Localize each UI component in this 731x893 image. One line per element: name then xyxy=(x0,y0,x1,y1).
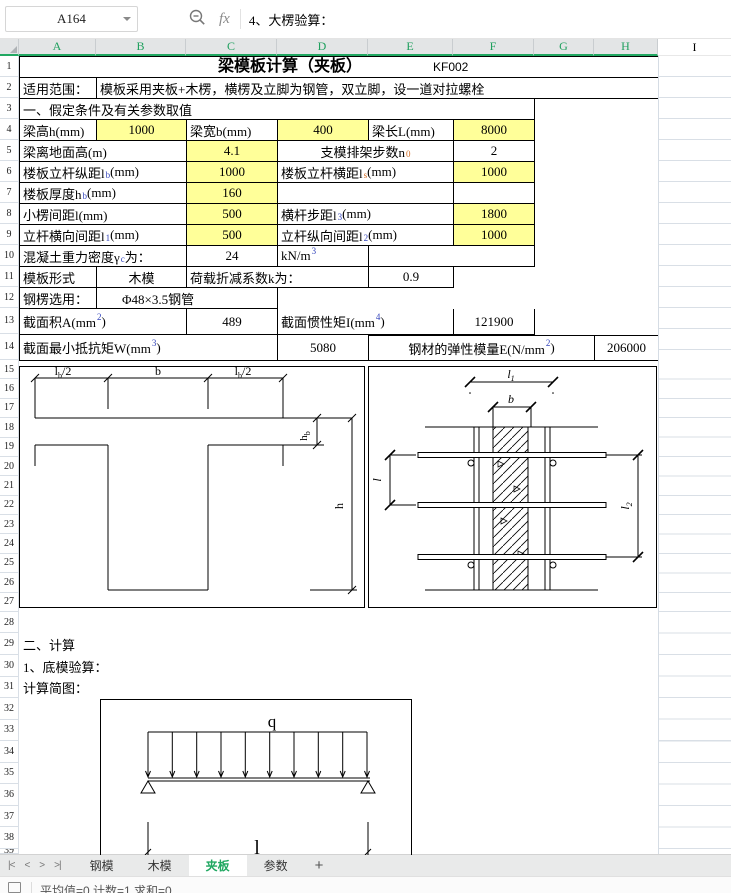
cell-a8-label[interactable]: 小楞间距l(mm) xyxy=(20,204,187,225)
row-header[interactable]: 3 xyxy=(0,98,19,119)
row-header[interactable]: 34 xyxy=(0,741,19,763)
cell-c5-value[interactable]: 4.1 xyxy=(187,141,278,162)
column-header-f[interactable]: F xyxy=(453,39,534,56)
dim-l2-label: l2 xyxy=(618,502,634,509)
cell-f13-value[interactable]: 121900 xyxy=(454,309,535,335)
column-header-b[interactable]: B xyxy=(96,39,186,56)
diagram-band: lb/2 b lb/2 xyxy=(19,361,659,613)
row-header[interactable]: 6 xyxy=(0,161,19,182)
row-header[interactable]: 30 xyxy=(0,655,19,677)
cell-g3-empty[interactable] xyxy=(535,99,659,120)
cell-c9-value[interactable]: 500 xyxy=(187,225,278,246)
cell-d9-label[interactable]: 立杆纵向间距l2(mm) xyxy=(278,225,454,246)
subscript: b xyxy=(83,191,88,201)
cell-a9-label[interactable]: 立杆横向间距l1(mm) xyxy=(20,225,187,246)
row-header[interactable]: 4 xyxy=(0,119,19,140)
select-all-corner[interactable] xyxy=(0,39,19,56)
row-header[interactable]: 31 xyxy=(0,677,19,699)
cell-c8-value[interactable]: 500 xyxy=(187,204,278,225)
sheet-title: 梁模板计算（夹板） xyxy=(20,57,560,77)
cell-a29[interactable]: 二、计算 xyxy=(19,634,659,655)
row-header[interactable]: 11 xyxy=(0,266,19,287)
cell-a30[interactable]: 1、底模验算： xyxy=(19,656,659,677)
cell-b2[interactable]: 模板采用夹板+木楞，横楞及立脚为钢管，双立脚，设一道对拉螺栓 xyxy=(97,78,659,99)
spreadsheet-grid: 1234567891011121314151617181920212223242… xyxy=(0,56,731,854)
cell-a13-label[interactable]: 截面积A(mm2) xyxy=(20,309,187,335)
row-header[interactable]: 2 xyxy=(0,77,19,98)
row-header[interactable]: 5 xyxy=(0,140,19,161)
cell-c7-value[interactable]: 160 xyxy=(187,183,278,204)
cell-a31[interactable]: 计算简图： xyxy=(19,677,659,698)
cell-c13-value[interactable]: 489 xyxy=(187,309,278,335)
dim-lb2-right-label: lb/2 xyxy=(235,366,252,380)
cell-mode-icon xyxy=(8,882,21,893)
beam-section-diagram: lb/2 b lb/2 xyxy=(19,366,365,608)
row-header[interactable]: 27 xyxy=(0,593,19,612)
subscript: 3 xyxy=(338,212,343,222)
cell-a6-label[interactable]: 楼板立杆纵距lb(mm) xyxy=(20,162,187,183)
span-l-label: l xyxy=(254,837,260,855)
row-header[interactable]: 26 xyxy=(0,573,19,592)
cell-a10-label[interactable]: 混凝土重力密度γc为： xyxy=(20,246,187,267)
superscript: 4 xyxy=(376,312,381,322)
name-box-value: A164 xyxy=(57,11,86,27)
formwork-plan-diagram: l1 b xyxy=(368,366,657,608)
cell-d8-label[interactable]: 横杆步距l3(mm) xyxy=(278,204,454,225)
cell-a7-label[interactable]: 楼板厚度hb(mm) xyxy=(20,183,187,204)
cell-h14-value[interactable]: 206000 xyxy=(595,335,659,361)
sheet-tab-mumo[interactable]: 木模 xyxy=(131,855,189,876)
cell-d10-unit[interactable]: kN/m3 xyxy=(278,246,369,267)
sheet-tab-jiaban-active[interactable]: 夹板 xyxy=(189,855,247,876)
dim-hb-label: hb xyxy=(298,431,312,441)
cell-f8-value[interactable]: 1800 xyxy=(454,204,535,225)
column-header-h[interactable]: H xyxy=(594,39,658,56)
column-i-cells[interactable] xyxy=(658,56,731,854)
dim-b-label: b xyxy=(508,392,514,406)
row-header[interactable]: 32 xyxy=(0,698,19,720)
row-header[interactable]: 21 xyxy=(0,476,19,495)
cell-a2[interactable]: 适用范围： xyxy=(20,78,97,99)
subscript: b xyxy=(106,170,111,180)
cell-a4-label[interactable]: 梁高h(mm) xyxy=(20,120,97,141)
simply-supported-beam-diagram: q xyxy=(100,699,412,855)
status-separator xyxy=(31,882,32,893)
row-header[interactable]: 19 xyxy=(0,438,19,457)
sheet-tab-canshu[interactable]: 参数 xyxy=(247,855,305,876)
cell-d5-label[interactable]: 支模排架步数n0 xyxy=(278,141,454,162)
cell-title[interactable]: 梁模板计算（夹板） KF002 xyxy=(20,57,659,78)
sheet-code: KF002 xyxy=(433,60,468,74)
cell-e14-label[interactable]: 钢材的弹性模量E(N/mm2) xyxy=(369,335,595,361)
first-sheet-icon[interactable]: |< xyxy=(8,860,14,871)
cell-c11-label[interactable]: 荷载折减系数k为： xyxy=(187,267,369,288)
subscript: 0 xyxy=(406,149,411,159)
formula-toolbar: A164 fx 4、大楞验算： xyxy=(0,0,731,39)
row-header[interactable]: 12 xyxy=(0,287,19,308)
superscript: 3 xyxy=(312,246,317,256)
next-sheet-icon[interactable]: > xyxy=(39,860,44,871)
cell-a28-empty[interactable] xyxy=(19,613,659,634)
dim-l-label: l xyxy=(370,478,384,482)
cell-d4-value[interactable]: 400 xyxy=(278,120,369,141)
row-header[interactable]: 13 xyxy=(0,308,19,334)
row-header[interactable]: 9 xyxy=(0,224,19,245)
cell-d13-label[interactable]: 截面惯性矩I(mm4) xyxy=(278,309,454,335)
cell-e4-label[interactable]: 梁长L(mm) xyxy=(369,120,454,141)
status-bar: 平均值=0 计数=1 求和=0 xyxy=(0,876,731,893)
subscript: c xyxy=(121,254,125,264)
cell-e10-empty[interactable] xyxy=(369,246,535,267)
subscript: 1 xyxy=(106,233,111,243)
row-header[interactable]: 20 xyxy=(0,457,19,476)
load-q-label: q xyxy=(268,712,277,731)
row-header[interactable]: 23 xyxy=(0,515,19,534)
column-header-e[interactable]: E xyxy=(368,39,453,56)
row-header[interactable]: 39 xyxy=(0,849,19,854)
dim-b-label: b xyxy=(155,366,161,378)
cell-c4-label[interactable]: 梁宽b(mm) xyxy=(187,120,278,141)
cell-a3[interactable]: 一、假定条件及有关参数取值 xyxy=(20,99,535,120)
column-header-i[interactable]: I xyxy=(658,39,731,56)
row-header[interactable]: 16 xyxy=(0,379,19,398)
row-header[interactable]: 22 xyxy=(0,496,19,515)
cell-d6-label[interactable]: 楼板立杆横距ls(mm) xyxy=(278,162,454,183)
row-header[interactable]: 28 xyxy=(0,612,19,634)
subscript: 2 xyxy=(364,233,369,243)
superscript: 3 xyxy=(152,338,157,348)
sheet-tab-bar: |< < > >| 钢模 木模 夹板 参数 + xyxy=(0,854,731,876)
row-header[interactable]: 25 xyxy=(0,554,19,573)
dim-l1-label: l1 xyxy=(507,367,514,383)
load-diagram-band: q xyxy=(19,698,659,855)
cell-a11-label[interactable]: 模板形式 xyxy=(20,267,97,288)
row-header[interactable]: 8 xyxy=(0,203,19,224)
row-header[interactable]: 36 xyxy=(0,784,19,806)
row-header[interactable]: 17 xyxy=(0,399,19,418)
cell-a12-label[interactable]: 钢楞选用： xyxy=(20,288,97,309)
subscript: s xyxy=(364,170,368,180)
name-box[interactable]: A164 xyxy=(5,6,138,32)
zoom-out-icon[interactable] xyxy=(188,8,207,30)
cell-f4-value[interactable]: 8000 xyxy=(454,120,535,141)
cell-d7-empty[interactable] xyxy=(278,183,454,204)
status-summary: 平均值=0 计数=1 求和=0 xyxy=(40,882,172,893)
dim-lb2-left-label: lb/2 xyxy=(55,366,72,380)
row-header[interactable]: 29 xyxy=(0,633,19,655)
row-header[interactable]: 15 xyxy=(0,360,19,379)
row-header[interactable]: 14 xyxy=(0,334,19,360)
cell-b4-value[interactable]: 1000 xyxy=(97,120,187,141)
row-header[interactable]: 1 xyxy=(0,56,19,77)
cell-a5-label[interactable]: 梁离地面高(m) xyxy=(20,141,187,162)
cell-b11-value[interactable]: 木模 xyxy=(97,267,187,288)
cell-f5-value[interactable]: 2 xyxy=(454,141,535,162)
add-sheet-button[interactable]: + xyxy=(305,855,334,876)
name-box-dropdown-icon[interactable] xyxy=(123,17,131,21)
cell-c10-value[interactable]: 24 xyxy=(187,246,278,267)
superscript: 2 xyxy=(97,312,102,322)
cell-c6-value[interactable]: 1000 xyxy=(187,162,278,183)
previous-sheet-icon[interactable]: < xyxy=(24,860,29,871)
row-header[interactable]: 33 xyxy=(0,720,19,742)
column-headers: A B C D E F G H I xyxy=(0,39,731,56)
cell-b12-value[interactable]: Φ48×3.5钢管 xyxy=(97,288,278,309)
sheet-tab-gangmo[interactable]: 钢模 xyxy=(73,855,131,876)
udl-arrows xyxy=(146,732,370,777)
sheet-content: 梁模板计算（夹板） KF002 适用范围： 模板采用夹板+木楞，横楞及立脚为钢管… xyxy=(19,56,659,855)
column-header-a[interactable]: A xyxy=(19,39,96,56)
row-header[interactable]: 35 xyxy=(0,763,19,785)
column-header-g[interactable]: G xyxy=(534,39,594,56)
dim-h-label: h xyxy=(332,503,346,509)
row-header[interactable]: 7 xyxy=(0,182,19,203)
insert-function-icon[interactable]: fx xyxy=(219,11,230,28)
row-header[interactable]: 18 xyxy=(0,418,19,437)
cell-d14-value[interactable]: 5080 xyxy=(278,335,369,361)
cell-f6-value[interactable]: 1000 xyxy=(454,162,535,183)
superscript: 2 xyxy=(546,338,551,348)
formula-bar-content[interactable]: 4、大楞验算： xyxy=(249,10,334,29)
cell-f9-value[interactable]: 1000 xyxy=(454,225,535,246)
row-header[interactable]: 38 xyxy=(0,827,19,849)
toolbar-separator xyxy=(240,9,241,29)
cell-f7-empty[interactable] xyxy=(454,183,535,204)
column-header-c[interactable]: C xyxy=(186,39,277,56)
sheet-navigation: |< < > >| xyxy=(0,855,73,876)
row-header[interactable]: 10 xyxy=(0,245,19,266)
last-sheet-icon[interactable]: >| xyxy=(54,860,60,871)
column-header-d[interactable]: D xyxy=(277,39,368,56)
cell-e11-value[interactable]: 0.9 xyxy=(369,267,454,288)
row-header[interactable]: 24 xyxy=(0,534,19,553)
parameter-table: 梁模板计算（夹板） KF002 适用范围： 模板采用夹板+木楞，横楞及立脚为钢管… xyxy=(19,56,659,361)
select-all-triangle-icon xyxy=(10,46,17,53)
row-header[interactable]: 37 xyxy=(0,806,19,828)
row-headers: 1234567891011121314151617181920212223242… xyxy=(0,56,19,854)
cell-a14-label[interactable]: 截面最小抵抗矩W(mm3) xyxy=(20,335,278,361)
